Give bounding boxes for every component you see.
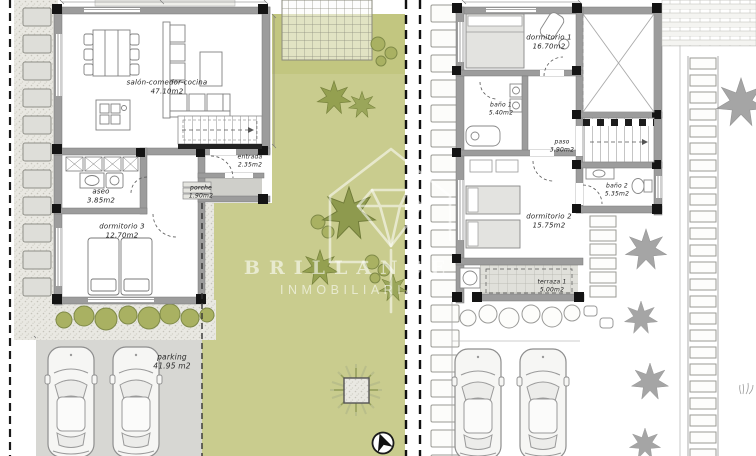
pergola	[282, 0, 372, 60]
room-label-parking: parking41.95 m2	[153, 353, 191, 372]
room-label-entrada: entrada2.35m2	[238, 154, 263, 169]
dimension-lines	[462, 0, 582, 4]
kitchen-island	[96, 100, 130, 130]
watermark-brand: BRILLANCE	[244, 257, 454, 279]
room-label-dormitorio-1: dormitorio 116.70m2	[526, 33, 572, 51]
car	[517, 349, 569, 456]
deck-walkway	[688, 56, 718, 456]
bathroom-fixtures	[80, 173, 123, 188]
room-label-dormitorio-2: dormitorio 215.75m2	[526, 212, 572, 230]
paver-walkway	[20, 4, 54, 298]
room-label-paso: paso3.90m2	[550, 139, 574, 154]
floor-plan-sheet: salón-comedor-cocina47.10m2 aseo3.85m2 e…	[0, 0, 756, 456]
closet-hatch	[66, 157, 138, 171]
bed-single	[466, 14, 524, 68]
first-floor-plan	[428, 0, 756, 456]
stairs	[583, 118, 654, 162]
room-label-salon: salón-comedor-cocina47.10m2	[127, 78, 208, 96]
grass-tuft	[740, 383, 753, 394]
room-label-bano-1: baño 15.40m2	[489, 102, 513, 117]
stepping-stone	[600, 318, 613, 328]
watermark-subtitle: INMOBILIARIA	[280, 283, 418, 297]
stairs	[178, 116, 262, 149]
bush-row	[460, 305, 580, 328]
room-label-dormitorio-3: dormitorio 312.70m2	[99, 222, 145, 240]
room-label-terraza-1: terraza 15.00m2	[537, 279, 566, 294]
terrace-fixture	[460, 268, 480, 288]
room-label-bano-2: baño 25.35m2	[605, 183, 629, 198]
stepping-stone	[584, 306, 597, 316]
dining-table	[84, 30, 139, 76]
louvre-deck	[662, 0, 756, 46]
porch-floor	[205, 178, 262, 198]
room-label-aseo: aseo3.85m2	[87, 187, 115, 205]
double-height-void	[583, 14, 654, 112]
car	[452, 349, 504, 456]
room-label-porche: porche1.90m2	[189, 185, 213, 200]
car	[45, 347, 97, 456]
